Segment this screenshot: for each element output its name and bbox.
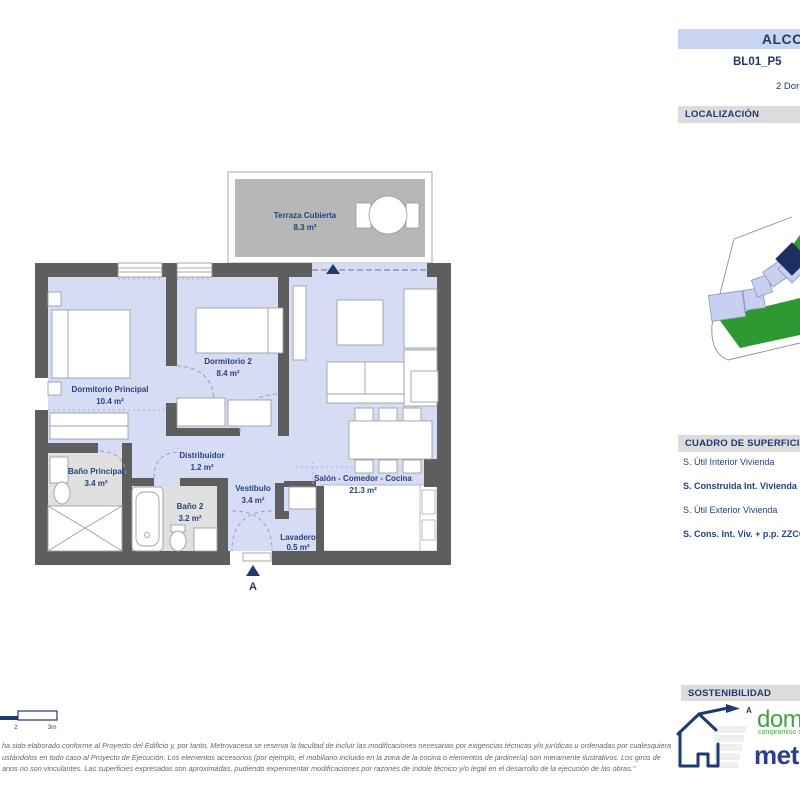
surface-row: S. Cons. Int. Viv. + p.p. ZZCC (683, 529, 800, 539)
svg-text:A: A (746, 706, 752, 715)
svg-text:3.4 m²: 3.4 m² (241, 496, 264, 505)
wardrobe-2 (228, 400, 271, 426)
svg-text:10.4 m²: 10.4 m² (96, 397, 124, 406)
svg-text:3.4 m²: 3.4 m² (84, 479, 107, 488)
room-label: Baño 2 (177, 502, 204, 511)
toilet (54, 482, 70, 504)
room-label: Vestíbulo (235, 484, 271, 493)
disclaimer-line: ha sido elaborado conforme al Proyecto d… (2, 740, 800, 752)
plan-sheet: ALCOR BL01_P5 2 Dormitorios LOCALIZACIÓN (0, 0, 800, 800)
terrace-chair (406, 203, 419, 228)
dining-chair (379, 460, 397, 473)
disclaimer-line: ustándolos en todo caso al Proyecto de E… (2, 752, 800, 764)
svg-text:21.3 m²: 21.3 m² (349, 486, 377, 495)
bed-principal (52, 310, 130, 378)
domum-tagline: compromiso sostenible (758, 729, 800, 736)
entrance-arrow-icon (246, 565, 260, 576)
dining-chair (403, 460, 421, 473)
svg-text:3.2 m²: 3.2 m² (178, 514, 201, 523)
terrace-table (369, 196, 407, 234)
dining-chair (355, 408, 373, 421)
surface-row: S. Útil Interior Vivienda (683, 457, 774, 467)
surface-row: S. Construida Int. Vivienda (683, 481, 797, 491)
svg-text:1.2 m²: 1.2 m² (190, 463, 213, 472)
terrace-sliding-door (312, 263, 427, 277)
svg-text:3m: 3m (47, 724, 56, 731)
sofa (327, 362, 404, 403)
disclaimer-line: arios no son vinculantes. Las superficie… (2, 763, 800, 775)
wardrobe-2 (177, 398, 225, 426)
legal-disclaimer: ha sido elaborado conforme al Proyecto d… (2, 740, 800, 775)
svg-text:8.4 m²: 8.4 m² (216, 369, 239, 378)
coffee-table (337, 300, 383, 345)
sustainability-section-header: SOSTENIBILIDAD (681, 685, 800, 701)
entrance-marker: A (246, 565, 260, 593)
bed-2 (196, 308, 283, 353)
surface-row: S. Útil Exterior Vivienda (683, 505, 777, 515)
room-label: Lavadero (280, 533, 316, 542)
nightstand (48, 382, 61, 395)
kitchen-hob (422, 520, 435, 540)
sink (194, 528, 217, 551)
shelf (293, 286, 306, 360)
svg-text:8.3 m²: 8.3 m² (293, 223, 316, 232)
wall-niche (35, 378, 48, 410)
floor-plan: Terraza Cubierta 8.3 m² Dormitorio Princ… (0, 0, 800, 800)
dining-table (349, 421, 432, 459)
room-label: Dormitorio Principal (72, 385, 149, 394)
room-label: Salón - Comedor - Cocina (314, 474, 412, 483)
arrow-head-icon (726, 704, 740, 713)
dining-chair (355, 460, 373, 473)
dining-chair (403, 408, 421, 421)
room-label: Terraza Cubierta (274, 211, 337, 220)
entrance-door (230, 551, 272, 565)
sink (50, 457, 68, 483)
svg-text:2: 2 (14, 724, 18, 731)
svg-text:A: A (249, 581, 257, 593)
armchair (411, 371, 438, 402)
scale-bar: 2 3m (0, 704, 70, 736)
washing-machine (289, 487, 316, 509)
kitchen-tall-unit (404, 289, 437, 348)
room-label: Dormitorio 2 (204, 357, 252, 366)
kitchen-sink (422, 490, 435, 514)
room-label: Distribuidor (179, 451, 224, 460)
toilet (170, 531, 186, 551)
dining-chair (379, 408, 397, 421)
svg-text:0.5 m²: 0.5 m² (286, 543, 309, 552)
room-label: Baño Principal (68, 467, 124, 476)
surfaces-section-header: CUADRO DE SUPERFICIES (678, 435, 800, 452)
nightstand (48, 292, 61, 306)
